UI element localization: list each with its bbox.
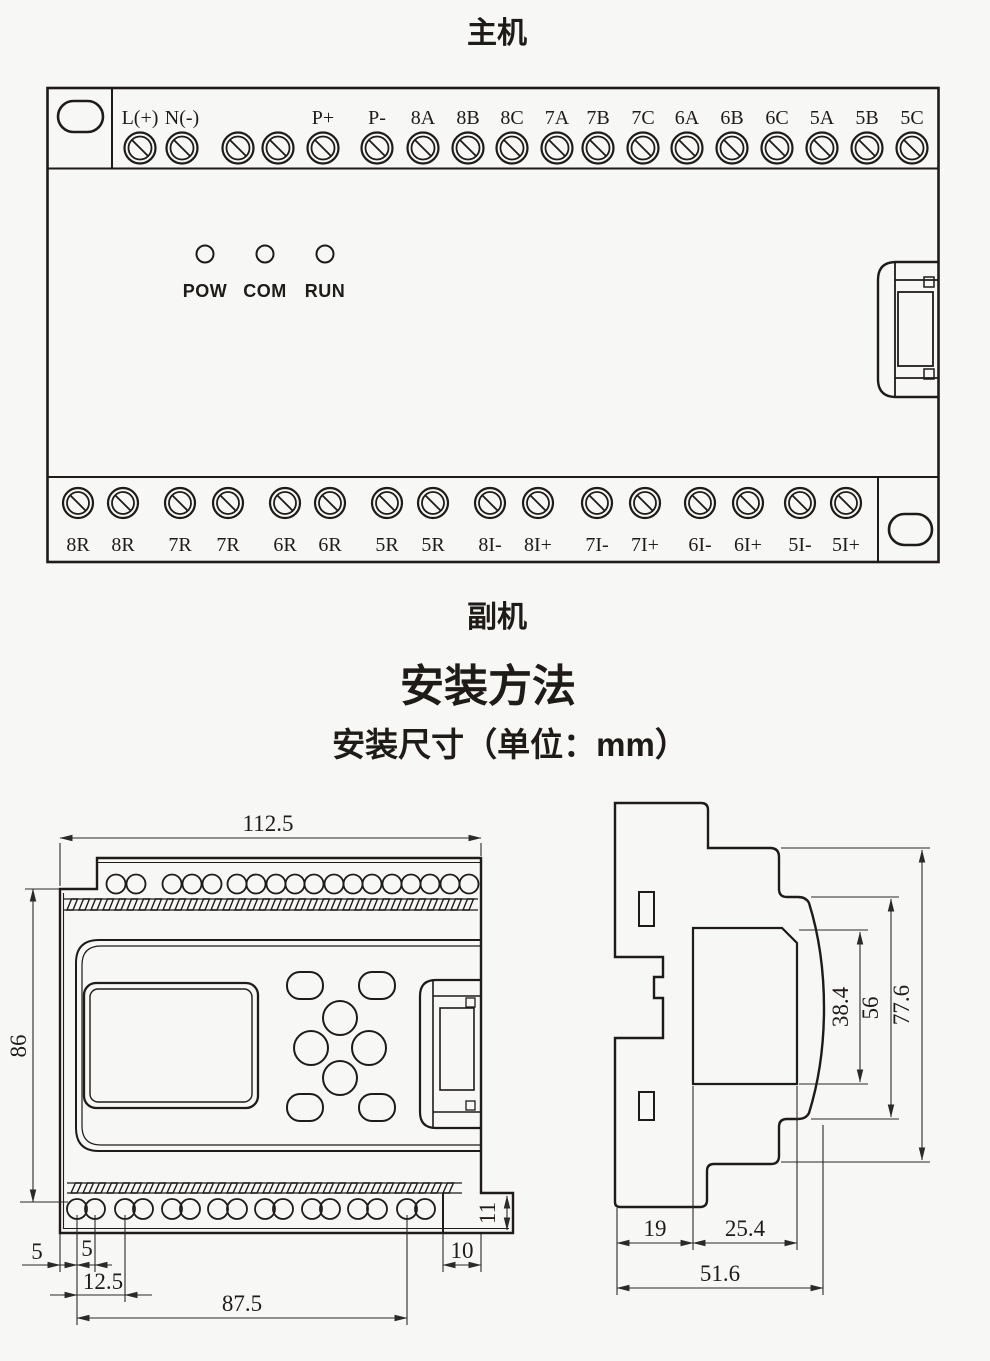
terminal-screw xyxy=(685,488,715,518)
bottom-terminal-label: 7R xyxy=(168,534,192,556)
terminal-screw xyxy=(270,488,300,518)
bottom-terminal-label: 5R xyxy=(375,534,399,556)
terminal-screw xyxy=(418,488,448,518)
terminal-screw xyxy=(125,133,156,164)
top-terminal-label: 7C xyxy=(631,107,654,129)
keypad-button xyxy=(359,972,395,999)
led-label: COM xyxy=(243,281,287,301)
led-indicator xyxy=(257,246,274,263)
terminal-screw xyxy=(542,133,573,164)
bottom-terminal-label: 7I+ xyxy=(631,534,659,556)
terminal-screw xyxy=(475,488,505,518)
dim-window-height: 38.4 xyxy=(828,986,853,1027)
top-terminal-label: N(-) xyxy=(165,107,199,129)
front-top-holes xyxy=(107,875,479,894)
terminal-screw xyxy=(315,488,345,518)
mounting-oval-top xyxy=(58,101,103,132)
top-terminal-row: L(+)N(-)P+P-8A8B8C7A7B7C6A6B6C5A5B5C xyxy=(122,107,928,164)
terminal-screw xyxy=(630,488,660,518)
side-slot-bottom xyxy=(639,1092,654,1120)
dim-step-height: 56 xyxy=(858,997,883,1020)
mounting-oval-bottom xyxy=(889,514,932,545)
terminal-screw xyxy=(852,133,883,164)
terminal-screw xyxy=(308,133,339,164)
terminal-screw xyxy=(372,488,402,518)
display-window xyxy=(84,983,258,1108)
front-expansion-connector xyxy=(420,980,481,1128)
terminal-screw xyxy=(108,488,138,518)
terminal-screw xyxy=(582,488,612,518)
dim-hole-pitch: 12.5 xyxy=(83,1269,123,1294)
terminal-screw xyxy=(453,133,484,164)
keypad-button xyxy=(287,1094,323,1121)
led-label: RUN xyxy=(305,281,346,301)
top-terminal-label: 8B xyxy=(456,107,479,129)
dim-total-depth: 51.6 xyxy=(700,1261,740,1286)
keypad-button xyxy=(287,972,323,999)
side-view-drawing: 19 25.4 51.6 38.4 56 77.6 xyxy=(615,803,930,1295)
bottom-terminal-label: 6I+ xyxy=(734,534,762,556)
top-terminal-label: 6B xyxy=(720,107,743,129)
bottom-terminal-label: 6I- xyxy=(688,534,711,556)
manual-page: 主机 副机 安装方法 安装尺寸（单位：mm） xyxy=(0,0,990,1361)
vent-band-bottom xyxy=(67,1183,462,1193)
dim-rail-depth: 19 xyxy=(644,1216,667,1241)
front-bottom-holes xyxy=(67,1199,435,1219)
front-outline xyxy=(60,858,513,1233)
top-terminal-label: 6A xyxy=(675,107,700,129)
terminal-screw xyxy=(223,133,254,164)
terminal-screw xyxy=(628,133,659,164)
terminal-screw xyxy=(497,133,528,164)
terminal-screw xyxy=(785,488,815,518)
top-terminal-label: 8A xyxy=(411,107,436,129)
terminal-screw xyxy=(408,133,439,164)
dim-hole-span: 87.5 xyxy=(222,1291,262,1316)
dim-hole-pair-spacing: 5 xyxy=(81,1236,93,1261)
terminal-screw xyxy=(831,488,861,518)
top-terminal-label: P- xyxy=(368,107,386,129)
top-terminal-label: 7B xyxy=(586,107,609,129)
bottom-terminal-label: 7I- xyxy=(585,534,608,556)
terminal-screw xyxy=(672,133,703,164)
bottom-terminal-label: 6R xyxy=(273,534,297,556)
side-outline xyxy=(615,803,824,1207)
top-terminal-label: P+ xyxy=(312,107,334,129)
terminal-screw xyxy=(362,133,393,164)
terminal-screw xyxy=(167,133,198,164)
status-leds: POWCOMRUN xyxy=(183,246,346,302)
dim-tab-height: 11 xyxy=(475,1202,500,1224)
top-terminal-label: 7A xyxy=(545,107,570,129)
bottom-terminal-label: 5I- xyxy=(788,534,811,556)
terminal-screw xyxy=(165,488,195,518)
keypad-button xyxy=(323,1061,357,1095)
front-view-drawing: 112.5 86 5 5 12.5 87.5 10 11 xyxy=(6,811,513,1325)
side-front-face xyxy=(693,928,797,1084)
bottom-terminal-label: 6R xyxy=(318,534,342,556)
dim-front-depth: 25.4 xyxy=(725,1216,766,1241)
terminal-screw xyxy=(263,133,294,164)
bottom-terminal-label: 8I+ xyxy=(524,534,552,556)
terminal-screw xyxy=(733,488,763,518)
dim-width: 112.5 xyxy=(243,811,294,836)
bottom-terminal-label: 5I+ xyxy=(832,534,860,556)
side-slot-top xyxy=(639,892,654,926)
bottom-terminal-row: 8R8R7R7R6R6R5R5R8I-8I+7I-7I+6I-6I+5I-5I+ xyxy=(63,488,861,556)
dim-total-height: 77.6 xyxy=(889,985,914,1025)
bottom-terminal-label: 5R xyxy=(421,534,445,556)
led-indicator xyxy=(317,246,334,263)
dim-edge-to-first-hole: 5 xyxy=(31,1239,43,1264)
front-dimension-lines xyxy=(20,838,507,1325)
terminal-screw xyxy=(523,488,553,518)
top-terminal-label: 5A xyxy=(810,107,835,129)
keypad-button xyxy=(359,1094,395,1121)
terminal-screw xyxy=(213,488,243,518)
top-terminal-label: 5B xyxy=(855,107,878,129)
keypad-button xyxy=(323,1001,357,1035)
keypad-button xyxy=(352,1031,386,1065)
vent-band-top xyxy=(63,899,478,910)
terminal-screw xyxy=(897,133,928,164)
top-terminal-label: L(+) xyxy=(122,107,159,129)
top-terminal-label: 6C xyxy=(765,107,788,129)
terminal-screw xyxy=(583,133,614,164)
led-label: POW xyxy=(183,281,228,301)
led-indicator xyxy=(197,246,214,263)
terminal-screw xyxy=(762,133,793,164)
bottom-terminal-label: 7R xyxy=(216,534,240,556)
bottom-terminal-label: 8R xyxy=(111,534,135,556)
top-terminal-label: 8C xyxy=(500,107,523,129)
keypad-button xyxy=(294,1031,328,1065)
main-unit-diagram: L(+)N(-)P+P-8A8B8C7A7B7C6A6B6C5A5B5C 8R8… xyxy=(48,88,939,562)
terminal-screw xyxy=(717,133,748,164)
dim-height: 86 xyxy=(6,1035,31,1058)
diagram-svg: L(+)N(-)P+P-8A8B8C7A7B7C6A6B6C5A5B5C 8R8… xyxy=(0,0,990,1361)
keypad xyxy=(287,972,395,1121)
terminal-screw xyxy=(807,133,838,164)
expansion-connector xyxy=(878,262,938,397)
bottom-terminal-label: 8R xyxy=(66,534,90,556)
dim-tab-width: 10 xyxy=(451,1238,474,1263)
bottom-terminal-label: 8I- xyxy=(478,534,501,556)
terminal-screw xyxy=(63,488,93,518)
top-terminal-label: 5C xyxy=(900,107,923,129)
